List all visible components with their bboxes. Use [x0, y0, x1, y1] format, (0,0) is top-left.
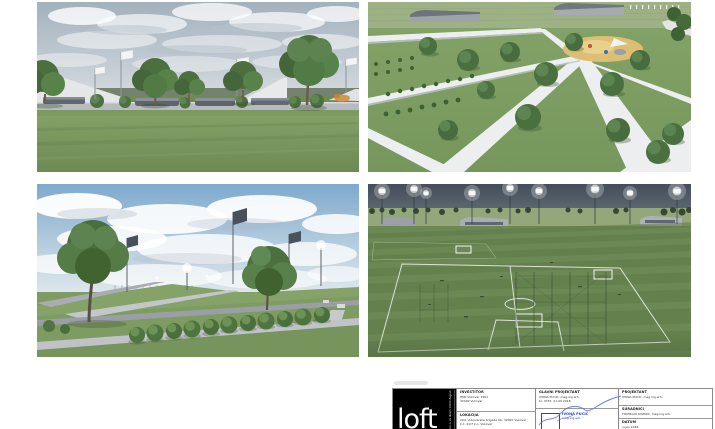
loft-logo-text: loft — [393, 407, 437, 429]
stamp-title: mag.ing.arh. — [562, 417, 588, 421]
field-lokacija: LOKACIJA 204. Vukovarske brigade bb, 320… — [457, 412, 535, 429]
field-glavni-projektant: GLAVNI PROJEKTANT IVONA PUCIĆ, mag.ing.a… — [536, 389, 618, 409]
field-suradnici: SURADNICI TOMISLAV KUZMIĆ, mag.ing.arh. — [619, 406, 713, 419]
field-datum-value: rujan 2018. — [622, 425, 711, 429]
title-block: loft loft d.o.o. za dizajn 10000 Zagreb … — [392, 388, 713, 429]
loft-logo: loft loft d.o.o. za dizajn 10000 Zagreb — [393, 389, 456, 429]
render-park-aerial-svg — [368, 2, 691, 172]
field-glavni-projektant-value2: br. 4767, 21.09.2018. — [539, 399, 616, 403]
titleblock-column-designer-date: PROJEKTANT IVONA PUCIĆ, mag.ing.arh. SUR… — [618, 389, 713, 429]
scan-smudge — [394, 381, 428, 385]
field-datum: DATUM rujan 2018. — [619, 419, 713, 429]
render-park-promenade — [37, 184, 359, 357]
render-park-benches-svg — [37, 2, 359, 172]
field-investitor: INVESTITOR HNK Vukovar 1991 32000 Vukova… — [457, 389, 535, 412]
field-lokacija-value2: k.č. 41/7 k.o. Vukovar — [460, 422, 533, 426]
render-training-pitches-svg — [368, 184, 691, 357]
render-park-aerial — [368, 2, 691, 172]
render-park-benches — [37, 2, 359, 172]
render-park-promenade-svg — [37, 184, 359, 357]
titleblock-column-investor-location: INVESTITOR HNK Vukovar 1991 32000 Vukova… — [456, 389, 535, 429]
stamp-box — [541, 413, 560, 429]
field-suradnici-value: TOMISLAV KUZMIĆ, mag.ing.arh. — [622, 412, 711, 416]
loft-logo-vertical-text: loft d.o.o. za dizajn 10000 Zagreb — [449, 390, 455, 429]
presentation-sheet: loft loft d.o.o. za dizajn 10000 Zagreb … — [0, 0, 715, 429]
field-projektant-value: IVONA PUCIĆ, mag.ing.arh. — [622, 395, 711, 399]
field-investitor-value2: 32000 Vukovar — [460, 399, 533, 403]
stamp-area: IVONA PUCIĆ mag.ing.arh. — [536, 409, 618, 429]
field-projektant: PROJEKTANT IVONA PUCIĆ, mag.ing.arh. — [619, 389, 713, 406]
stamp-text: IVONA PUCIĆ mag.ing.arh. — [562, 412, 588, 421]
render-training-pitches — [368, 184, 691, 357]
titleblock-column-chief-designer: GLAVNI PROJEKTANT IVONA PUCIĆ, mag.ing.a… — [535, 389, 618, 429]
